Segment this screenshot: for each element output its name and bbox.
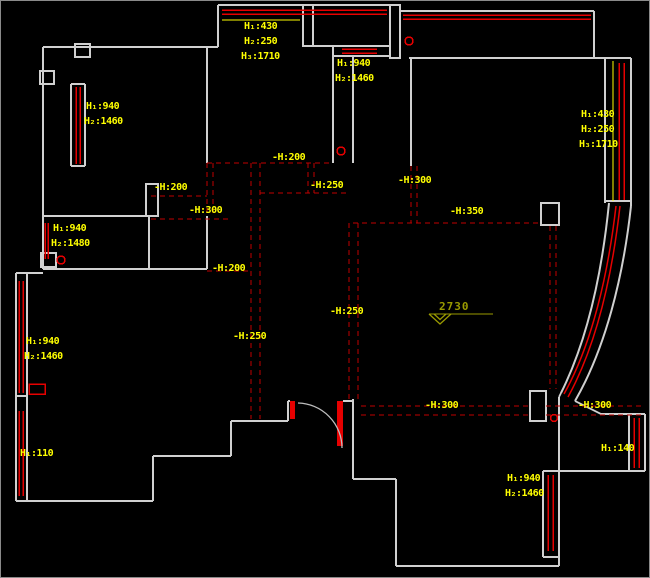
window-height-label: H₁:430 bbox=[244, 21, 277, 32]
window-height-label: H₁:110 bbox=[20, 448, 53, 459]
floor-plan-drawing bbox=[1, 1, 650, 578]
window-height-label: H₁:940 bbox=[86, 101, 119, 112]
window-height-label: H₂:1460 bbox=[24, 351, 63, 362]
window-lines bbox=[19, 10, 639, 551]
window-height-label: H₂:1460 bbox=[84, 116, 123, 127]
window-height-label: H₂:1460 bbox=[335, 73, 374, 84]
ceiling-height-label: -H:300 bbox=[398, 175, 431, 186]
window-height-label: H₁:940 bbox=[26, 336, 59, 347]
window-height-label: H₂:250 bbox=[581, 124, 614, 135]
ceiling-height-label: -H:200 bbox=[212, 263, 245, 274]
ceiling-height-label: -H:250 bbox=[310, 180, 343, 191]
window-height-label: H₁:430 bbox=[581, 109, 614, 120]
cad-canvas[interactable]: H₁:430 H₂:250 H₃:1710 H₁:940 H₂:1460 H₁:… bbox=[0, 0, 650, 578]
ceiling-height-label: -H:300 bbox=[425, 400, 458, 411]
wall-lines bbox=[16, 5, 645, 566]
door-swing-arc bbox=[298, 403, 342, 448]
level-mark-symbol bbox=[429, 314, 493, 324]
ceiling-height-label: -H:200 bbox=[154, 182, 187, 193]
ceiling-height-label: -H:350 bbox=[450, 206, 483, 217]
window-height-label: H₁:940 bbox=[337, 58, 370, 69]
curtain-lines bbox=[222, 20, 613, 201]
ceiling-height-label: -H:200 bbox=[272, 152, 305, 163]
window-height-label: H₁:940 bbox=[53, 223, 86, 234]
door-jamb-left bbox=[290, 401, 295, 419]
window-height-label: H₂:1480 bbox=[51, 238, 90, 249]
door bbox=[290, 401, 343, 448]
ceiling-height-label: -H:300 bbox=[578, 400, 611, 411]
window-height-label: H₃:1710 bbox=[579, 139, 618, 150]
level-mark-value: 2730 bbox=[439, 301, 470, 312]
door-jamb-right bbox=[337, 401, 343, 446]
window-height-label: H₁:940 bbox=[507, 473, 540, 484]
window-height-label: H₂:250 bbox=[244, 36, 277, 47]
ceiling-height-label: -H:300 bbox=[189, 205, 222, 216]
window-height-label: H₂:1460 bbox=[505, 488, 544, 499]
ceiling-height-label: -H:250 bbox=[330, 306, 363, 317]
window-height-label: H₁:140 bbox=[601, 443, 634, 454]
window-height-label: H₃:1710 bbox=[241, 51, 280, 62]
ceiling-height-label: -H:250 bbox=[233, 331, 266, 342]
